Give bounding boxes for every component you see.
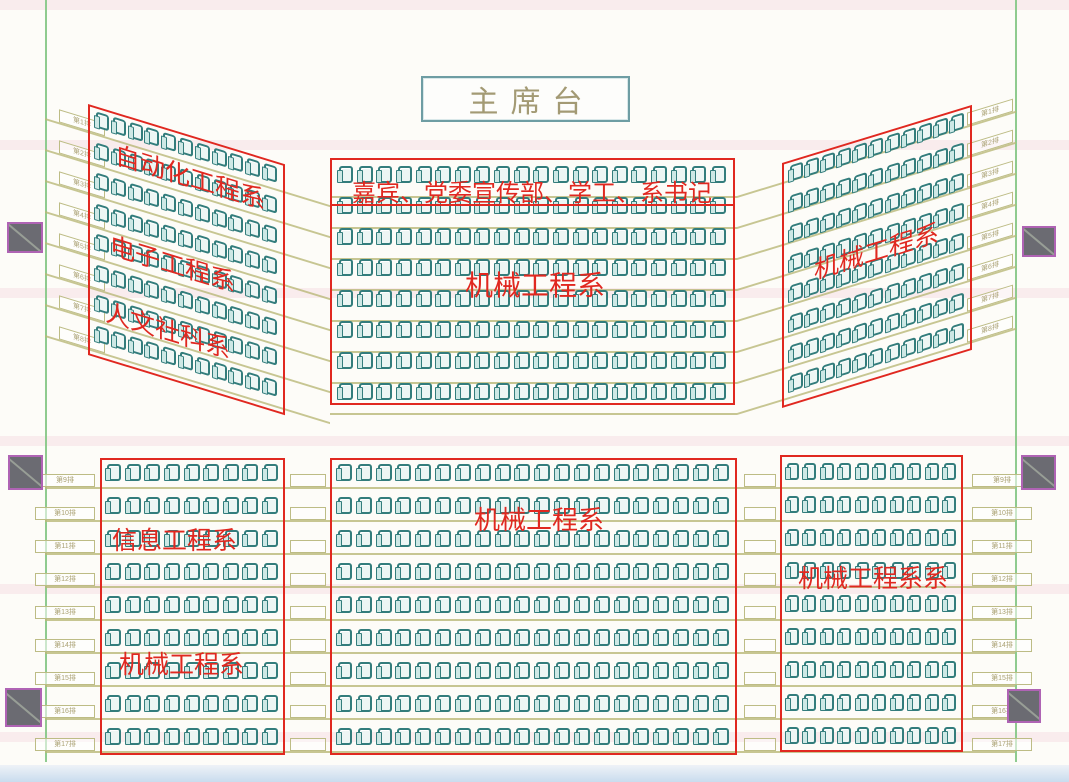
seat — [935, 267, 948, 287]
seat — [186, 563, 200, 580]
seat — [418, 352, 432, 369]
seat — [951, 262, 964, 282]
seat — [575, 228, 589, 245]
seat — [398, 290, 412, 307]
aisle-step — [744, 474, 776, 487]
seat — [887, 192, 900, 212]
seat — [339, 166, 353, 183]
seat — [870, 287, 883, 307]
seat — [787, 628, 799, 645]
seat — [477, 464, 491, 481]
seat-row — [787, 496, 956, 529]
aisle-step — [290, 507, 326, 520]
seat — [457, 596, 471, 613]
seat — [358, 596, 372, 613]
seat-row — [787, 529, 956, 562]
seat — [437, 662, 451, 679]
row-tag: 第15排 — [35, 672, 95, 685]
seat — [535, 383, 549, 400]
seat — [378, 464, 392, 481]
seat — [675, 662, 689, 679]
seat — [338, 662, 352, 679]
seat — [214, 208, 227, 228]
seat — [616, 728, 630, 745]
seat — [838, 177, 851, 197]
aisle-step — [744, 705, 776, 718]
seat — [822, 212, 835, 232]
seat-row — [339, 352, 726, 383]
row-tag: 第17排 — [35, 738, 95, 751]
seat — [247, 310, 260, 330]
seat — [712, 259, 726, 276]
seat-row — [338, 464, 729, 497]
seat — [244, 695, 258, 712]
seat — [397, 695, 411, 712]
seat — [516, 383, 530, 400]
seat — [457, 530, 471, 547]
seat — [857, 496, 869, 513]
seat — [892, 661, 904, 678]
seat — [264, 596, 278, 613]
seat — [339, 228, 353, 245]
seat — [338, 497, 352, 514]
seat — [616, 530, 630, 547]
seat — [359, 228, 373, 245]
seat — [339, 383, 353, 400]
seat — [127, 695, 141, 712]
seat — [166, 464, 180, 481]
seat — [653, 259, 667, 276]
seat — [892, 595, 904, 612]
seat — [197, 142, 210, 162]
row-tag: 第4排 — [967, 192, 1013, 219]
seat — [822, 694, 834, 711]
seat — [437, 464, 451, 481]
seat — [457, 321, 471, 338]
seat — [804, 595, 816, 612]
seat — [516, 464, 530, 481]
seat — [180, 229, 193, 249]
seat-row — [338, 596, 729, 629]
seat — [205, 728, 219, 745]
seat-row — [107, 563, 278, 596]
seat — [927, 463, 939, 480]
seat — [838, 327, 851, 347]
seat-row — [338, 629, 729, 662]
seat — [839, 628, 851, 645]
seat — [790, 342, 803, 362]
seat — [854, 352, 867, 372]
seat — [476, 228, 490, 245]
seat — [854, 292, 867, 312]
seat — [675, 464, 689, 481]
seat — [715, 563, 729, 580]
seat — [180, 351, 193, 371]
seat — [673, 352, 687, 369]
seat — [378, 259, 392, 276]
seat — [146, 563, 160, 580]
seat — [692, 321, 706, 338]
seat — [264, 193, 277, 213]
seat — [225, 563, 239, 580]
seat — [516, 563, 530, 580]
seat — [113, 269, 126, 289]
seat — [536, 629, 550, 646]
seat — [437, 497, 451, 514]
seat — [457, 695, 471, 712]
seat — [418, 290, 432, 307]
seat — [887, 162, 900, 182]
seat — [166, 596, 180, 613]
seat — [822, 595, 834, 612]
seat — [951, 232, 964, 252]
seat — [874, 727, 886, 744]
seat-row — [107, 695, 278, 728]
row-tag: 第7排 — [967, 285, 1013, 312]
seat — [555, 352, 569, 369]
seat — [635, 563, 649, 580]
seat — [197, 234, 210, 254]
seat — [397, 629, 411, 646]
seat — [516, 728, 530, 745]
seat — [927, 661, 939, 678]
seat — [887, 282, 900, 302]
seat — [477, 662, 491, 679]
seat — [113, 117, 126, 137]
seat — [378, 695, 392, 712]
seat — [614, 259, 628, 276]
seat — [247, 280, 260, 300]
seat — [575, 321, 589, 338]
seat — [857, 727, 869, 744]
seat — [516, 321, 530, 338]
seat — [555, 321, 569, 338]
seat — [247, 371, 260, 391]
seat — [715, 464, 729, 481]
seat — [264, 315, 277, 335]
seat — [614, 352, 628, 369]
seat — [614, 228, 628, 245]
seat — [417, 596, 431, 613]
seat — [715, 629, 729, 646]
seat — [715, 695, 729, 712]
seat — [166, 728, 180, 745]
seat — [205, 497, 219, 514]
seat — [870, 197, 883, 217]
seat — [225, 695, 239, 712]
seat — [186, 497, 200, 514]
seat — [712, 352, 726, 369]
seat — [107, 464, 121, 481]
seat — [919, 302, 932, 322]
seat — [186, 464, 200, 481]
seat — [338, 629, 352, 646]
seat — [130, 213, 143, 233]
seat — [397, 662, 411, 679]
seat — [712, 290, 726, 307]
seat — [675, 596, 689, 613]
aisle-step — [290, 738, 326, 751]
seat — [163, 223, 176, 243]
seat — [230, 366, 243, 386]
seat — [903, 187, 916, 207]
seat — [927, 727, 939, 744]
seat — [635, 530, 649, 547]
row-tag: 第12排 — [972, 573, 1032, 586]
seat — [695, 695, 709, 712]
seat — [822, 727, 834, 744]
row-tag: 第16排 — [35, 705, 95, 718]
seat — [107, 629, 121, 646]
seat — [909, 727, 921, 744]
seat — [870, 167, 883, 187]
aisle-step — [290, 540, 326, 553]
seat — [576, 629, 590, 646]
section-label: 信息工程系 — [112, 528, 237, 556]
seat — [205, 464, 219, 481]
seat — [695, 596, 709, 613]
seat — [806, 217, 819, 237]
seat — [909, 496, 921, 513]
seat — [244, 728, 258, 745]
aisle-step — [744, 672, 776, 685]
seat — [903, 307, 916, 327]
seat — [166, 695, 180, 712]
seat — [107, 695, 121, 712]
seat — [822, 661, 834, 678]
seat — [244, 629, 258, 646]
seat — [359, 259, 373, 276]
seat — [695, 497, 709, 514]
seat — [596, 464, 610, 481]
seat — [457, 228, 471, 245]
seat — [838, 357, 851, 377]
row-tag: 第3排 — [967, 161, 1013, 188]
seat — [822, 362, 835, 382]
seat-row — [338, 662, 729, 695]
seat-row — [787, 463, 956, 496]
seat — [806, 337, 819, 357]
seat — [787, 595, 799, 612]
row-tag: 第10排 — [972, 507, 1032, 520]
seat — [378, 497, 392, 514]
seat — [576, 464, 590, 481]
section-label: 机械工程系系 — [798, 566, 948, 594]
seat — [378, 728, 392, 745]
seat — [397, 530, 411, 547]
seat — [874, 529, 886, 546]
seat — [909, 628, 921, 645]
seat — [806, 157, 819, 177]
seat — [712, 383, 726, 400]
seat — [594, 352, 608, 369]
seat — [477, 728, 491, 745]
seat — [113, 178, 126, 198]
seat — [653, 321, 667, 338]
seat — [107, 563, 121, 580]
seat — [909, 694, 921, 711]
seat-row — [787, 595, 956, 628]
seat — [496, 352, 510, 369]
seat-row — [787, 661, 956, 694]
seat-row — [338, 563, 729, 596]
seat — [633, 259, 647, 276]
seat — [166, 497, 180, 514]
seat — [398, 228, 412, 245]
seat — [575, 383, 589, 400]
seat — [264, 530, 278, 547]
seat — [457, 662, 471, 679]
seat — [790, 162, 803, 182]
seat — [535, 352, 549, 369]
aisle-step — [744, 606, 776, 619]
seat — [616, 497, 630, 514]
seat — [247, 249, 260, 269]
seat — [247, 219, 260, 239]
seat — [839, 463, 851, 480]
seat — [535, 321, 549, 338]
seat — [107, 596, 121, 613]
seat — [790, 312, 803, 332]
seat — [418, 259, 432, 276]
seat — [822, 332, 835, 352]
seat — [870, 347, 883, 367]
seat — [806, 367, 819, 387]
seat — [339, 352, 353, 369]
seat — [594, 321, 608, 338]
seat — [497, 662, 511, 679]
seat — [214, 361, 227, 381]
seat — [673, 383, 687, 400]
seat — [146, 728, 160, 745]
stage-box: 主席台 — [421, 76, 630, 122]
seat — [944, 727, 956, 744]
seat — [787, 496, 799, 513]
seat — [437, 728, 451, 745]
seat — [418, 228, 432, 245]
seat — [635, 464, 649, 481]
seat — [205, 596, 219, 613]
seat — [247, 341, 260, 361]
seat — [378, 321, 392, 338]
seat — [635, 497, 649, 514]
seat — [576, 563, 590, 580]
seat — [614, 383, 628, 400]
seat-row — [107, 497, 278, 530]
seat — [457, 629, 471, 646]
seat — [437, 290, 451, 307]
seat — [186, 629, 200, 646]
seat — [787, 694, 799, 711]
seat — [244, 662, 258, 679]
seat — [919, 332, 932, 352]
seat — [497, 728, 511, 745]
seat — [839, 727, 851, 744]
seat — [857, 595, 869, 612]
seat — [715, 596, 729, 613]
seat — [575, 352, 589, 369]
seat — [806, 307, 819, 327]
seat-row — [107, 596, 278, 629]
row-tag: 第6排 — [967, 254, 1013, 281]
seat — [457, 383, 471, 400]
seat — [822, 628, 834, 645]
seat — [264, 285, 277, 305]
seat — [359, 321, 373, 338]
seat — [712, 228, 726, 245]
seat — [166, 563, 180, 580]
seat — [397, 728, 411, 745]
pillar — [1007, 689, 1041, 723]
seat — [264, 376, 277, 396]
seat — [264, 254, 277, 274]
seat — [437, 695, 451, 712]
seat — [903, 277, 916, 297]
seat — [635, 728, 649, 745]
seat — [555, 228, 569, 245]
seat — [264, 464, 278, 481]
seat — [951, 322, 964, 342]
seat — [787, 727, 799, 744]
row-tag: 第14排 — [972, 639, 1032, 652]
seat — [127, 629, 141, 646]
seat — [944, 529, 956, 546]
seat — [576, 596, 590, 613]
seat — [874, 496, 886, 513]
seat — [556, 728, 570, 745]
seat — [919, 272, 932, 292]
seat — [378, 629, 392, 646]
seat — [214, 147, 227, 167]
seat — [951, 292, 964, 312]
seat — [614, 290, 628, 307]
seat — [870, 317, 883, 337]
seat — [264, 224, 277, 244]
section-label: 机械工程系 — [119, 652, 244, 680]
seat — [695, 464, 709, 481]
seat — [264, 563, 278, 580]
seat — [892, 727, 904, 744]
seat — [127, 563, 141, 580]
row-tag: 第10排 — [35, 507, 95, 520]
seat — [616, 629, 630, 646]
seat — [695, 563, 709, 580]
seat — [536, 464, 550, 481]
aisle-step — [744, 540, 776, 553]
seat — [653, 352, 667, 369]
seat — [497, 629, 511, 646]
seat — [113, 208, 126, 228]
seat — [556, 464, 570, 481]
seat — [692, 352, 706, 369]
seat — [616, 596, 630, 613]
section-label: 机械工程系 — [474, 507, 604, 536]
seat — [127, 728, 141, 745]
seat — [715, 662, 729, 679]
bottom-edge-strip — [0, 765, 1069, 782]
seat — [616, 662, 630, 679]
seat — [378, 563, 392, 580]
seat — [230, 336, 243, 356]
seat — [576, 662, 590, 679]
seat — [339, 321, 353, 338]
seat — [338, 695, 352, 712]
seat — [536, 728, 550, 745]
seat — [437, 228, 451, 245]
seat — [166, 629, 180, 646]
seat — [244, 596, 258, 613]
seat — [536, 563, 550, 580]
